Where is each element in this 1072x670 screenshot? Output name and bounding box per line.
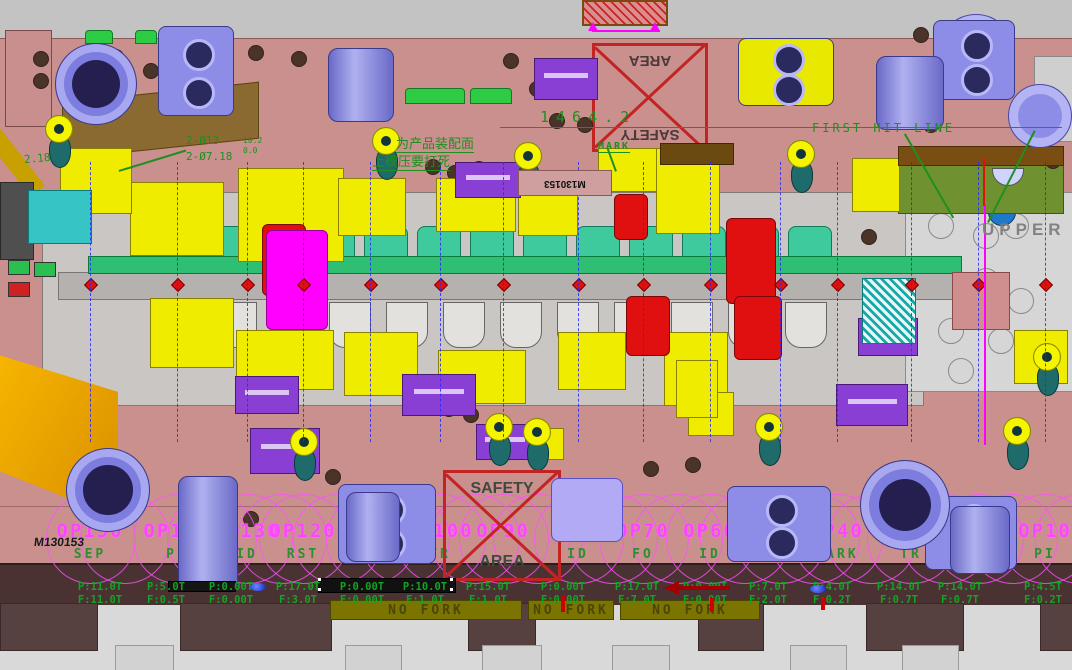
mark-label: MARK [598,141,630,153]
guide-post-cylinder [950,506,1010,574]
base-foot [180,603,332,651]
pad-hole-outline [948,358,974,384]
scale-bar-dot [318,578,321,581]
station-type-label: RST [287,547,319,562]
lifter-pin-donut [485,413,513,441]
guide-post-cylinder [178,476,238,590]
locator-tab-green [85,30,113,44]
plate-hole [643,461,659,477]
red-tick-mark [821,598,825,610]
bushing-bore [83,465,132,514]
clamp-fixture [727,486,831,562]
guide-post-cylinder [346,492,400,562]
plate-hole [325,469,341,485]
die-block-yellow [150,298,234,368]
station-force-tonnage: F:0.2T [813,594,851,606]
first-hit-line-label: FIRST HIT LINE [812,121,955,135]
punch-red [626,296,670,356]
station-press-tonnage: P:0.00T [209,581,253,593]
guide-bushing [66,448,150,532]
die-number-plate-text: M130153 [544,178,586,189]
pad-hole-outline [1008,288,1034,314]
station-press-tonnage: P:0.00T [340,581,384,593]
station-force-tonnage: F:0.7T [880,594,918,606]
bolster-tab [902,645,959,670]
keeper-block-purple [455,162,521,198]
keeper-label-unreadable [414,389,464,394]
centerline-dashed [303,162,304,442]
centerline-dashed [177,162,178,442]
plate-hole [33,73,49,89]
clamp-fixture [158,26,234,116]
construction-line-magenta [984,205,986,445]
keeper-label-unreadable [848,399,897,404]
centerline-dashed [90,162,91,442]
bushing-bore [879,479,932,532]
station-type-label: ID [699,547,721,562]
plate-hole [248,45,264,61]
lifter-block-lavender [551,478,623,542]
dim-arrow-left [588,22,598,31]
guide-bushing [55,43,137,125]
centerline-dashed [837,162,838,442]
station-type-label: FO [632,547,654,562]
die-number-bottom-left: M130153 [33,535,85,549]
centerline-dashed [578,162,579,442]
station-force-tonnage: F:0.00T [209,594,253,606]
station-force-tonnage: F:0.2T [1024,594,1062,606]
lifter-pin-donut [1003,417,1031,445]
plate-hole [913,27,929,43]
lifter-pin-donut [523,418,551,446]
sensor-dot-blue [250,583,266,591]
centerline-dashed [780,162,781,442]
station-force-tonnage: F:1.0T [406,594,444,606]
upper-label: UPPER [982,220,1066,240]
safety-word: SAFETY [470,480,533,498]
station-force-tonnage: F:1.0T [469,594,507,606]
guide-post-cylinder [876,56,944,130]
hex-bolt-icon [183,77,215,109]
safety-area-box-bottom: SAFETY AREA [443,470,561,581]
station-press-tonnage: P:17.0T [615,581,659,593]
station-press-tonnage: P:7.0T [749,581,787,593]
base-foot [866,603,964,651]
centerline-dashed [710,162,711,442]
strip-material [88,256,962,274]
station-op-label: OP120 [269,520,336,542]
punch-red [726,218,776,304]
station-force-tonnage: F:0.00T [683,594,727,606]
scale-bar-dot [318,588,321,591]
hex-bolt-icon [961,64,993,96]
station-press-tonnage: P:5.0T [147,581,185,593]
hole-callout-2: 2-Ø7.18 [186,150,232,163]
plate-hole [503,53,519,69]
lifter-pin-donut [45,115,73,143]
die-block-yellow [676,360,718,418]
lifter-pin-donut [290,428,318,456]
guide-post-cylinder [328,48,394,122]
bushing-bore [72,60,120,108]
locator-tab-green [405,88,465,104]
keeper-block-purple [402,374,476,416]
plate-hole [861,229,877,245]
pad-hole-outline [988,328,1014,354]
scale-bar-dot [450,588,453,591]
overall-dimension-text: 1464.2 [540,108,636,126]
station-op-label: OP70 [616,520,670,542]
die-block-yellow [852,158,900,212]
station-force-tonnage: F:0.7T [941,594,979,606]
hex-bolt-icon [961,30,993,62]
hole-callout-1: 2-Ø13 [186,134,219,147]
locator-tab-green [470,88,512,104]
brown-bar-top [660,143,734,165]
hex-bolt-icon [766,495,798,527]
feed-direction-arrow [678,586,730,590]
die-cavity-cup [785,302,827,348]
bolster-tab [790,645,847,670]
station-force-tonnage: F:3.0T [279,594,317,606]
plate-hole [143,63,159,79]
station-type-label: SEP [74,547,106,562]
clamp-fixture [933,20,1015,100]
hex-bolt-icon [183,39,215,71]
station-press-tonnage: P:15.0T [466,581,510,593]
keeper-label-unreadable [544,73,587,78]
station-type-label: PI [1034,547,1056,562]
small-dim-3: 2.18 [23,151,51,166]
keeper-block-purple [235,376,299,414]
lifter-pin-donut [514,142,542,170]
station-press-tonnage: P:17.0T [276,581,320,593]
station-press-tonnage: P:14.0T [877,581,921,593]
red-tick-mark [710,598,714,612]
die-number-plate-tag: M130153 [518,170,612,196]
die-block-yellow [558,332,626,390]
indicator-chip [8,260,30,275]
scale-bar-dot [450,578,453,581]
station-force-tonnage: F:0.00T [340,594,384,606]
chinese-note-1: 为产品装配面 [396,133,474,153]
area-word: AREA [629,52,672,69]
bolster-tab [612,645,670,670]
station-force-tonnage: F:11.0T [78,594,122,606]
centerline-dashed [503,162,504,442]
left-teal-clamp [28,190,92,244]
small-dim-1: 10.2 [243,136,262,145]
station-type-label: ID [567,547,589,562]
feed-direction-arrowhead [664,581,679,595]
plate-hole [685,457,701,473]
station-press-tonnage: P:14.0T [938,581,982,593]
lifter-pin-donut [787,140,815,168]
area-word: AREA [479,553,524,571]
construction-line-red [983,158,985,206]
centerline-dashed [247,162,248,442]
station-force-tonnage: F:7.0T [618,594,656,606]
lifter-pin-donut [1033,343,1061,371]
centerline-dashed [643,162,644,442]
die-cavity-cup [443,302,485,348]
sensor-dot-blue [810,585,826,593]
plate-hole [291,51,307,67]
round-flange [1008,84,1072,148]
plate-hole [33,51,49,67]
station-press-tonnage: P:4.5T [1024,581,1062,593]
red-tick-mark [561,596,565,612]
station-force-tonnage: F:2.0T [749,594,787,606]
overall-dimension-line [500,127,1062,128]
pad-hole-outline [928,213,954,239]
centerline-dashed [978,162,979,442]
safety-area-box-top: SAFETY AREA [592,43,708,152]
guide-bushing [860,460,950,550]
base-foot [1040,603,1072,651]
hex-bolt-icon [766,527,798,559]
form-block-magenta [266,230,328,330]
station-press-tonnage: P:11.0T [78,581,122,593]
bolster-tab [482,645,542,670]
centerline-dashed [370,162,371,442]
base-foot [0,603,98,651]
centerline-dashed [440,162,441,442]
small-dim-2: 0.0 [243,146,257,155]
indicator-chip [34,262,56,277]
station-press-tonnage: P:0.00T [541,581,585,593]
centerline-dashed [911,162,912,442]
hex-bolt-icon [773,44,805,76]
cad-viewport: SAFETY AREA SAFETY AREA 1464.2 MARK FIRS… [0,0,1072,670]
keeper-block-purple [534,58,598,100]
station-op-label: OP10 [1018,520,1072,542]
die-block-yellow [338,178,406,236]
station-type-label: ID [236,547,258,562]
safety-area-text-top: SAFETY AREA [595,46,705,149]
chinese-note-2: 上模压要打死 [372,151,450,171]
bolster-tab [115,645,174,670]
locator-tab-green [135,30,157,44]
indicator-chip [8,282,30,297]
station-force-tonnage: F:0.5T [147,594,185,606]
station-press-tonnage: P:10.0T [403,581,447,593]
dim-arrow-right [650,22,660,31]
bolster-tab [345,645,402,670]
safety-area-text-bottom: SAFETY AREA [446,473,558,578]
keeper-label-unreadable [245,390,288,395]
keeper-block-purple [836,384,908,426]
hex-bolt-icon [773,74,805,106]
punch-red [734,296,782,360]
clamp-fixture [738,38,834,106]
die-cavity-cup [500,302,542,348]
lifter-pin-donut [755,413,783,441]
centerline-dashed [1045,162,1046,442]
